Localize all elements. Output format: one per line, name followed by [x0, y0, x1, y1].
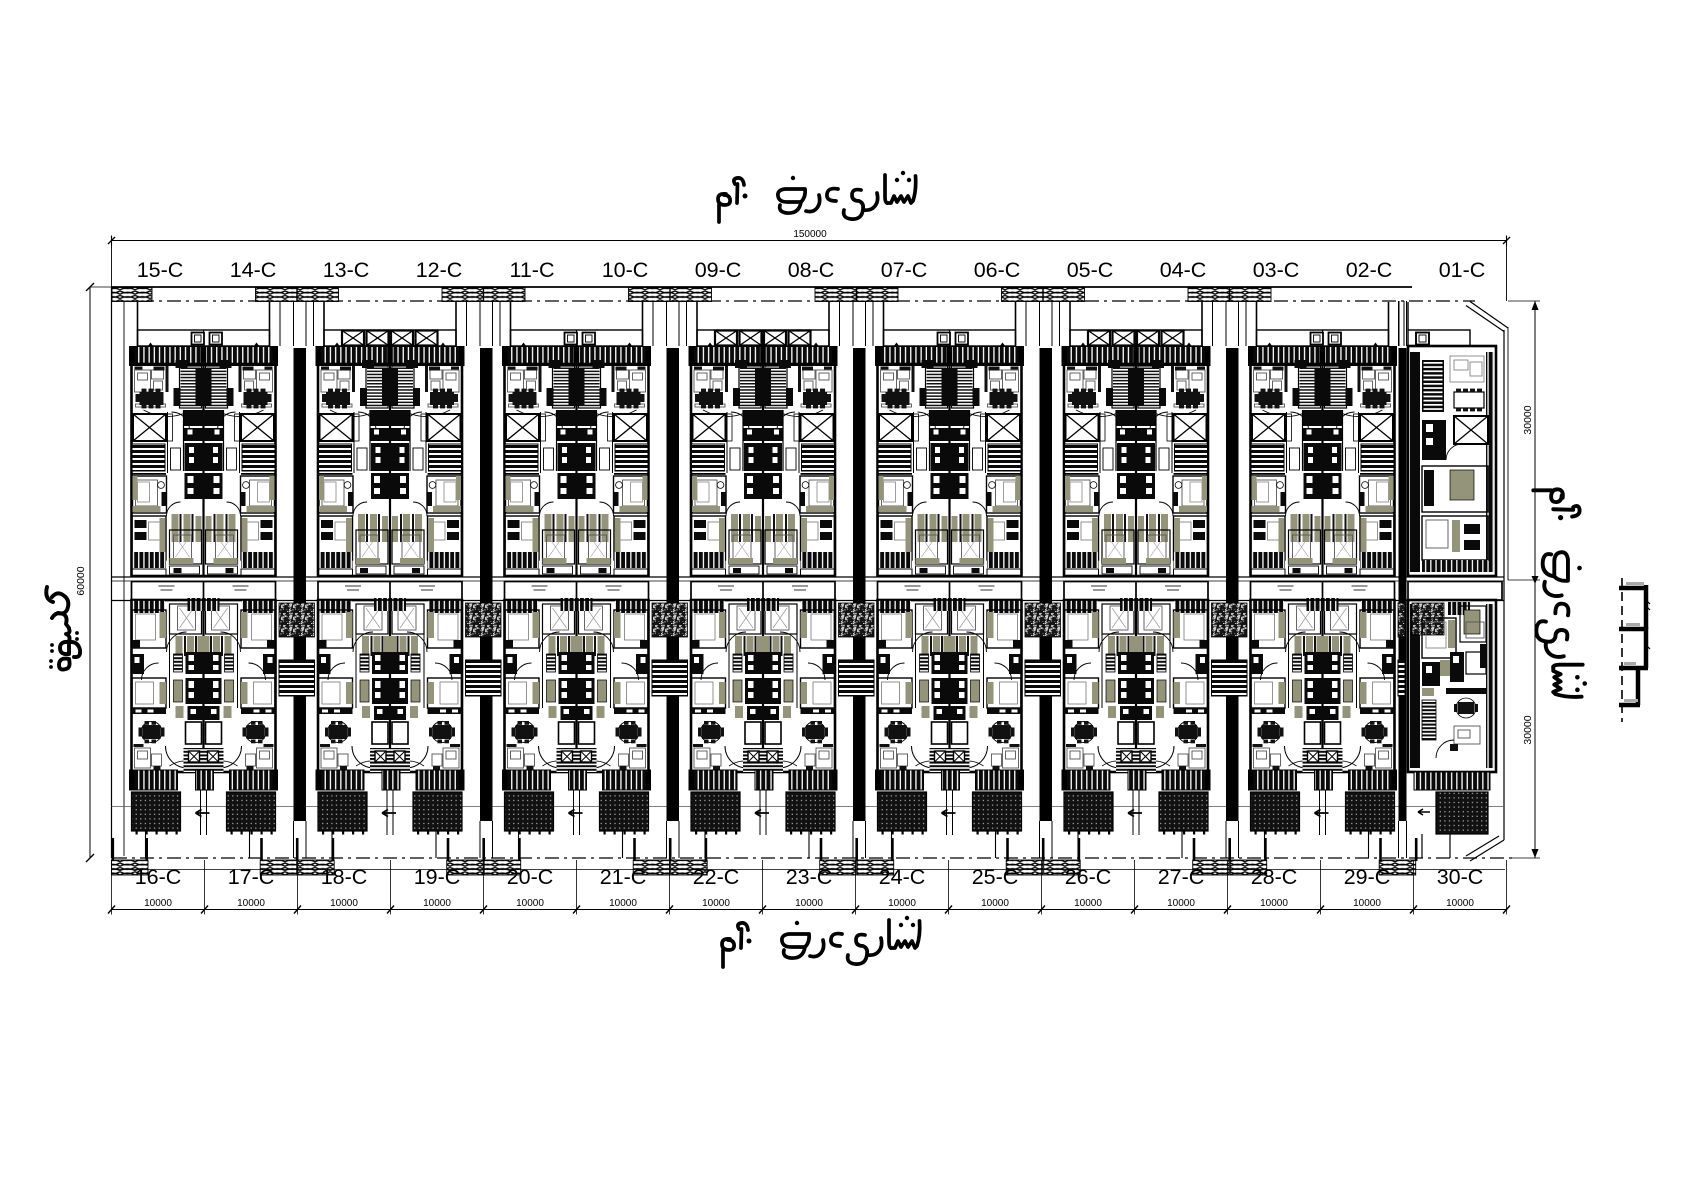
svg-text:29-C: 29-C	[1344, 865, 1391, 889]
svg-text:05-C: 05-C	[1067, 258, 1114, 282]
svg-text:10000: 10000	[981, 898, 1009, 909]
svg-text:10000: 10000	[888, 898, 916, 909]
svg-text:28-C: 28-C	[1251, 865, 1298, 889]
svg-text:60000: 60000	[75, 566, 87, 595]
svg-text:30000: 30000	[1522, 715, 1534, 744]
svg-text:10000: 10000	[609, 898, 637, 909]
svg-text:17-C: 17-C	[228, 865, 275, 889]
svg-text:12-C: 12-C	[416, 258, 463, 282]
svg-text:10000: 10000	[1353, 898, 1381, 909]
svg-text:24-C: 24-C	[879, 865, 926, 889]
svg-text:10000: 10000	[423, 898, 451, 909]
svg-text:30000: 30000	[1522, 405, 1534, 434]
svg-text:23-C: 23-C	[786, 865, 833, 889]
svg-text:10000: 10000	[516, 898, 544, 909]
svg-text:02-C: 02-C	[1346, 258, 1393, 282]
svg-text:20-C: 20-C	[507, 865, 554, 889]
svg-text:10000: 10000	[795, 898, 823, 909]
svg-text:13-C: 13-C	[323, 258, 370, 282]
svg-text:21-C: 21-C	[600, 865, 647, 889]
svg-text:16-C: 16-C	[135, 865, 182, 889]
svg-text:06-C: 06-C	[974, 258, 1021, 282]
svg-text:09-C: 09-C	[695, 258, 742, 282]
svg-text:15-C: 15-C	[137, 258, 184, 282]
svg-text:10000: 10000	[1074, 898, 1102, 909]
svg-text:01-C: 01-C	[1439, 258, 1486, 282]
svg-text:19-C: 19-C	[414, 865, 461, 889]
svg-text:10000: 10000	[144, 898, 172, 909]
svg-text:11-C: 11-C	[509, 258, 554, 282]
svg-text:10000: 10000	[1446, 898, 1474, 909]
svg-text:08-C: 08-C	[788, 258, 835, 282]
svg-text:14-C: 14-C	[230, 258, 277, 282]
svg-text:22-C: 22-C	[693, 865, 740, 889]
svg-text:10000: 10000	[1167, 898, 1195, 909]
svg-text:10000: 10000	[330, 898, 358, 909]
svg-text:25-C: 25-C	[972, 865, 1019, 889]
svg-text:18-C: 18-C	[321, 865, 368, 889]
svg-text:27-C: 27-C	[1158, 865, 1205, 889]
svg-text:26-C: 26-C	[1065, 865, 1112, 889]
svg-text:10-C: 10-C	[602, 258, 649, 282]
svg-text:10000: 10000	[702, 898, 730, 909]
svg-text:10000: 10000	[237, 898, 265, 909]
svg-text:10000: 10000	[1260, 898, 1288, 909]
svg-text:04-C: 04-C	[1160, 258, 1207, 282]
svg-text:150000: 150000	[793, 229, 827, 240]
svg-text:03-C: 03-C	[1253, 258, 1300, 282]
svg-text:07-C: 07-C	[881, 258, 928, 282]
svg-text:30-C: 30-C	[1437, 865, 1484, 889]
